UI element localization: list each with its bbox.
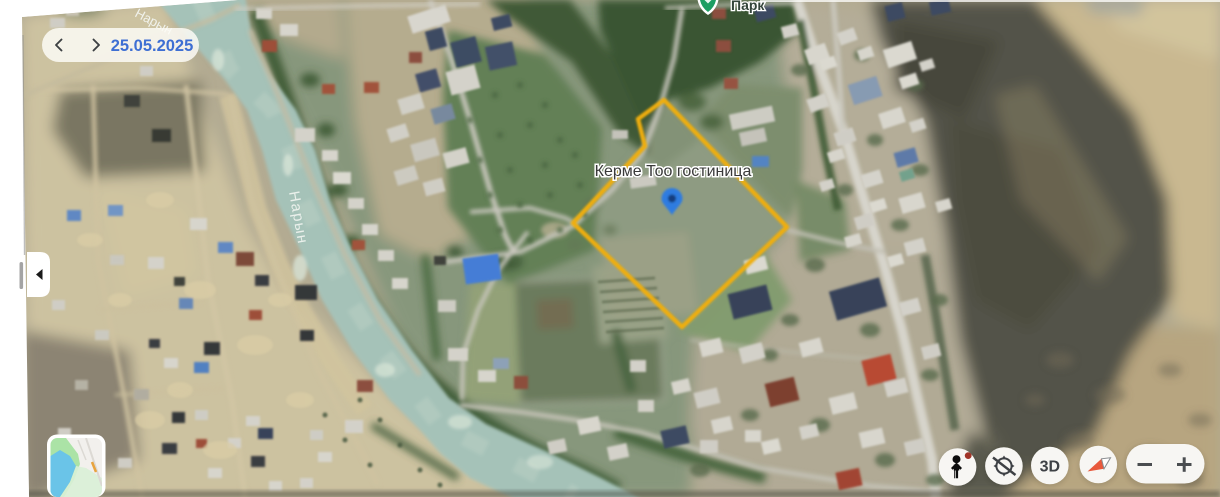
svg-text:Парк: Парк <box>731 0 765 13</box>
svg-text:3D: 3D <box>1040 459 1060 476</box>
svg-text:Керме Тоо гостиница: Керме Тоо гостиница <box>595 163 752 180</box>
svg-text:25.05.2025: 25.05.2025 <box>111 37 194 55</box>
